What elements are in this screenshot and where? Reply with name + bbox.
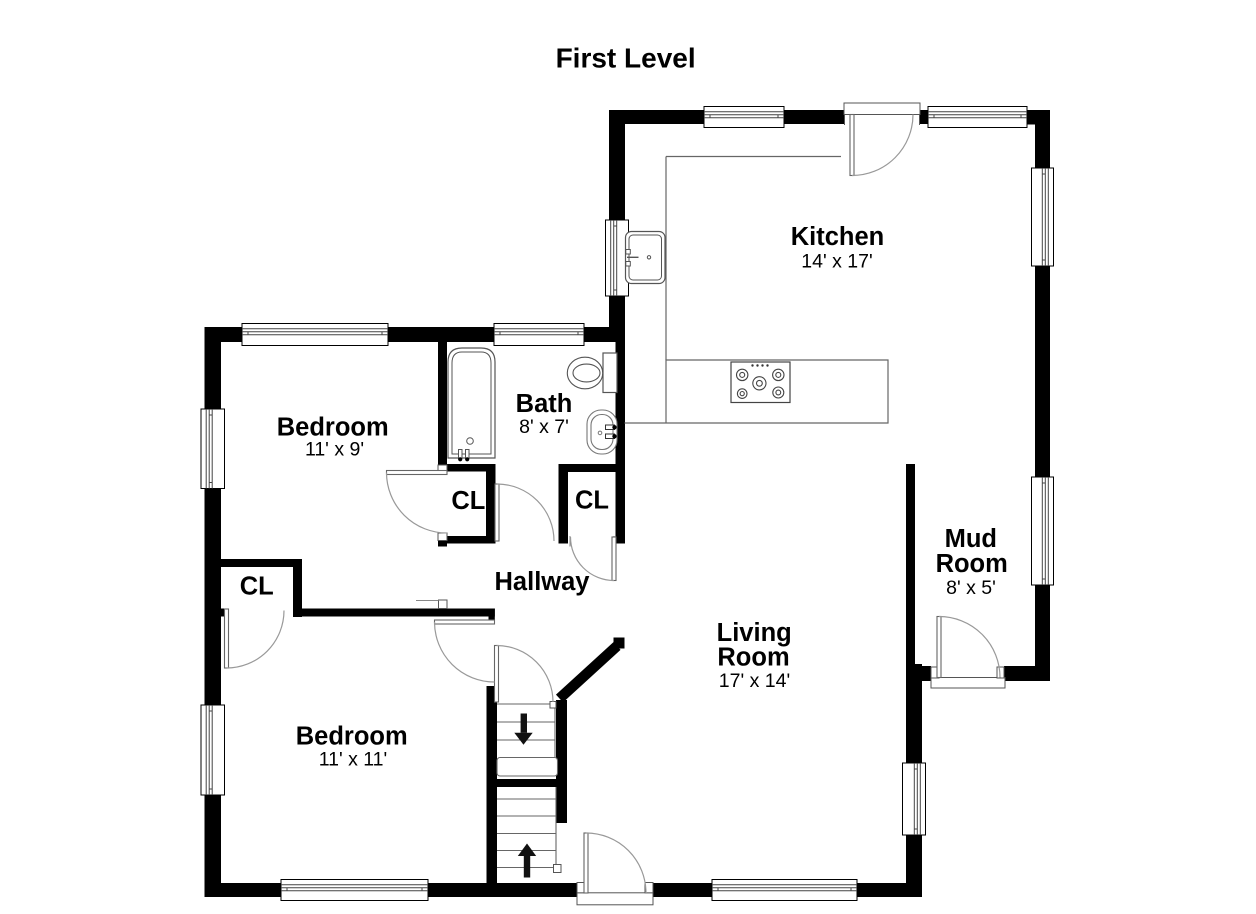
svg-text:11' x 9': 11' x 9' bbox=[305, 439, 364, 461]
svg-text:Bedroom: Bedroom bbox=[277, 413, 389, 441]
svg-text:Kitchen: Kitchen bbox=[791, 223, 885, 251]
svg-text:Hallway: Hallway bbox=[495, 568, 591, 596]
svg-text:17' x 14': 17' x 14' bbox=[719, 670, 790, 692]
svg-text:Room: Room bbox=[936, 550, 1008, 578]
svg-text:CL: CL bbox=[575, 487, 609, 515]
svg-text:8' x 5': 8' x 5' bbox=[946, 577, 996, 599]
svg-text:8' x 7': 8' x 7' bbox=[519, 416, 569, 438]
svg-text:Bedroom: Bedroom bbox=[296, 722, 408, 750]
svg-text:Room: Room bbox=[717, 643, 789, 671]
svg-text:11' x 11': 11' x 11' bbox=[319, 749, 388, 771]
svg-text:First Level: First Level bbox=[556, 43, 696, 74]
svg-text:Bath: Bath bbox=[516, 390, 573, 418]
svg-text:CL: CL bbox=[451, 487, 485, 515]
svg-text:14' x 17': 14' x 17' bbox=[801, 251, 872, 273]
svg-text:CL: CL bbox=[240, 572, 274, 600]
svg-text:Mud: Mud bbox=[945, 525, 997, 553]
